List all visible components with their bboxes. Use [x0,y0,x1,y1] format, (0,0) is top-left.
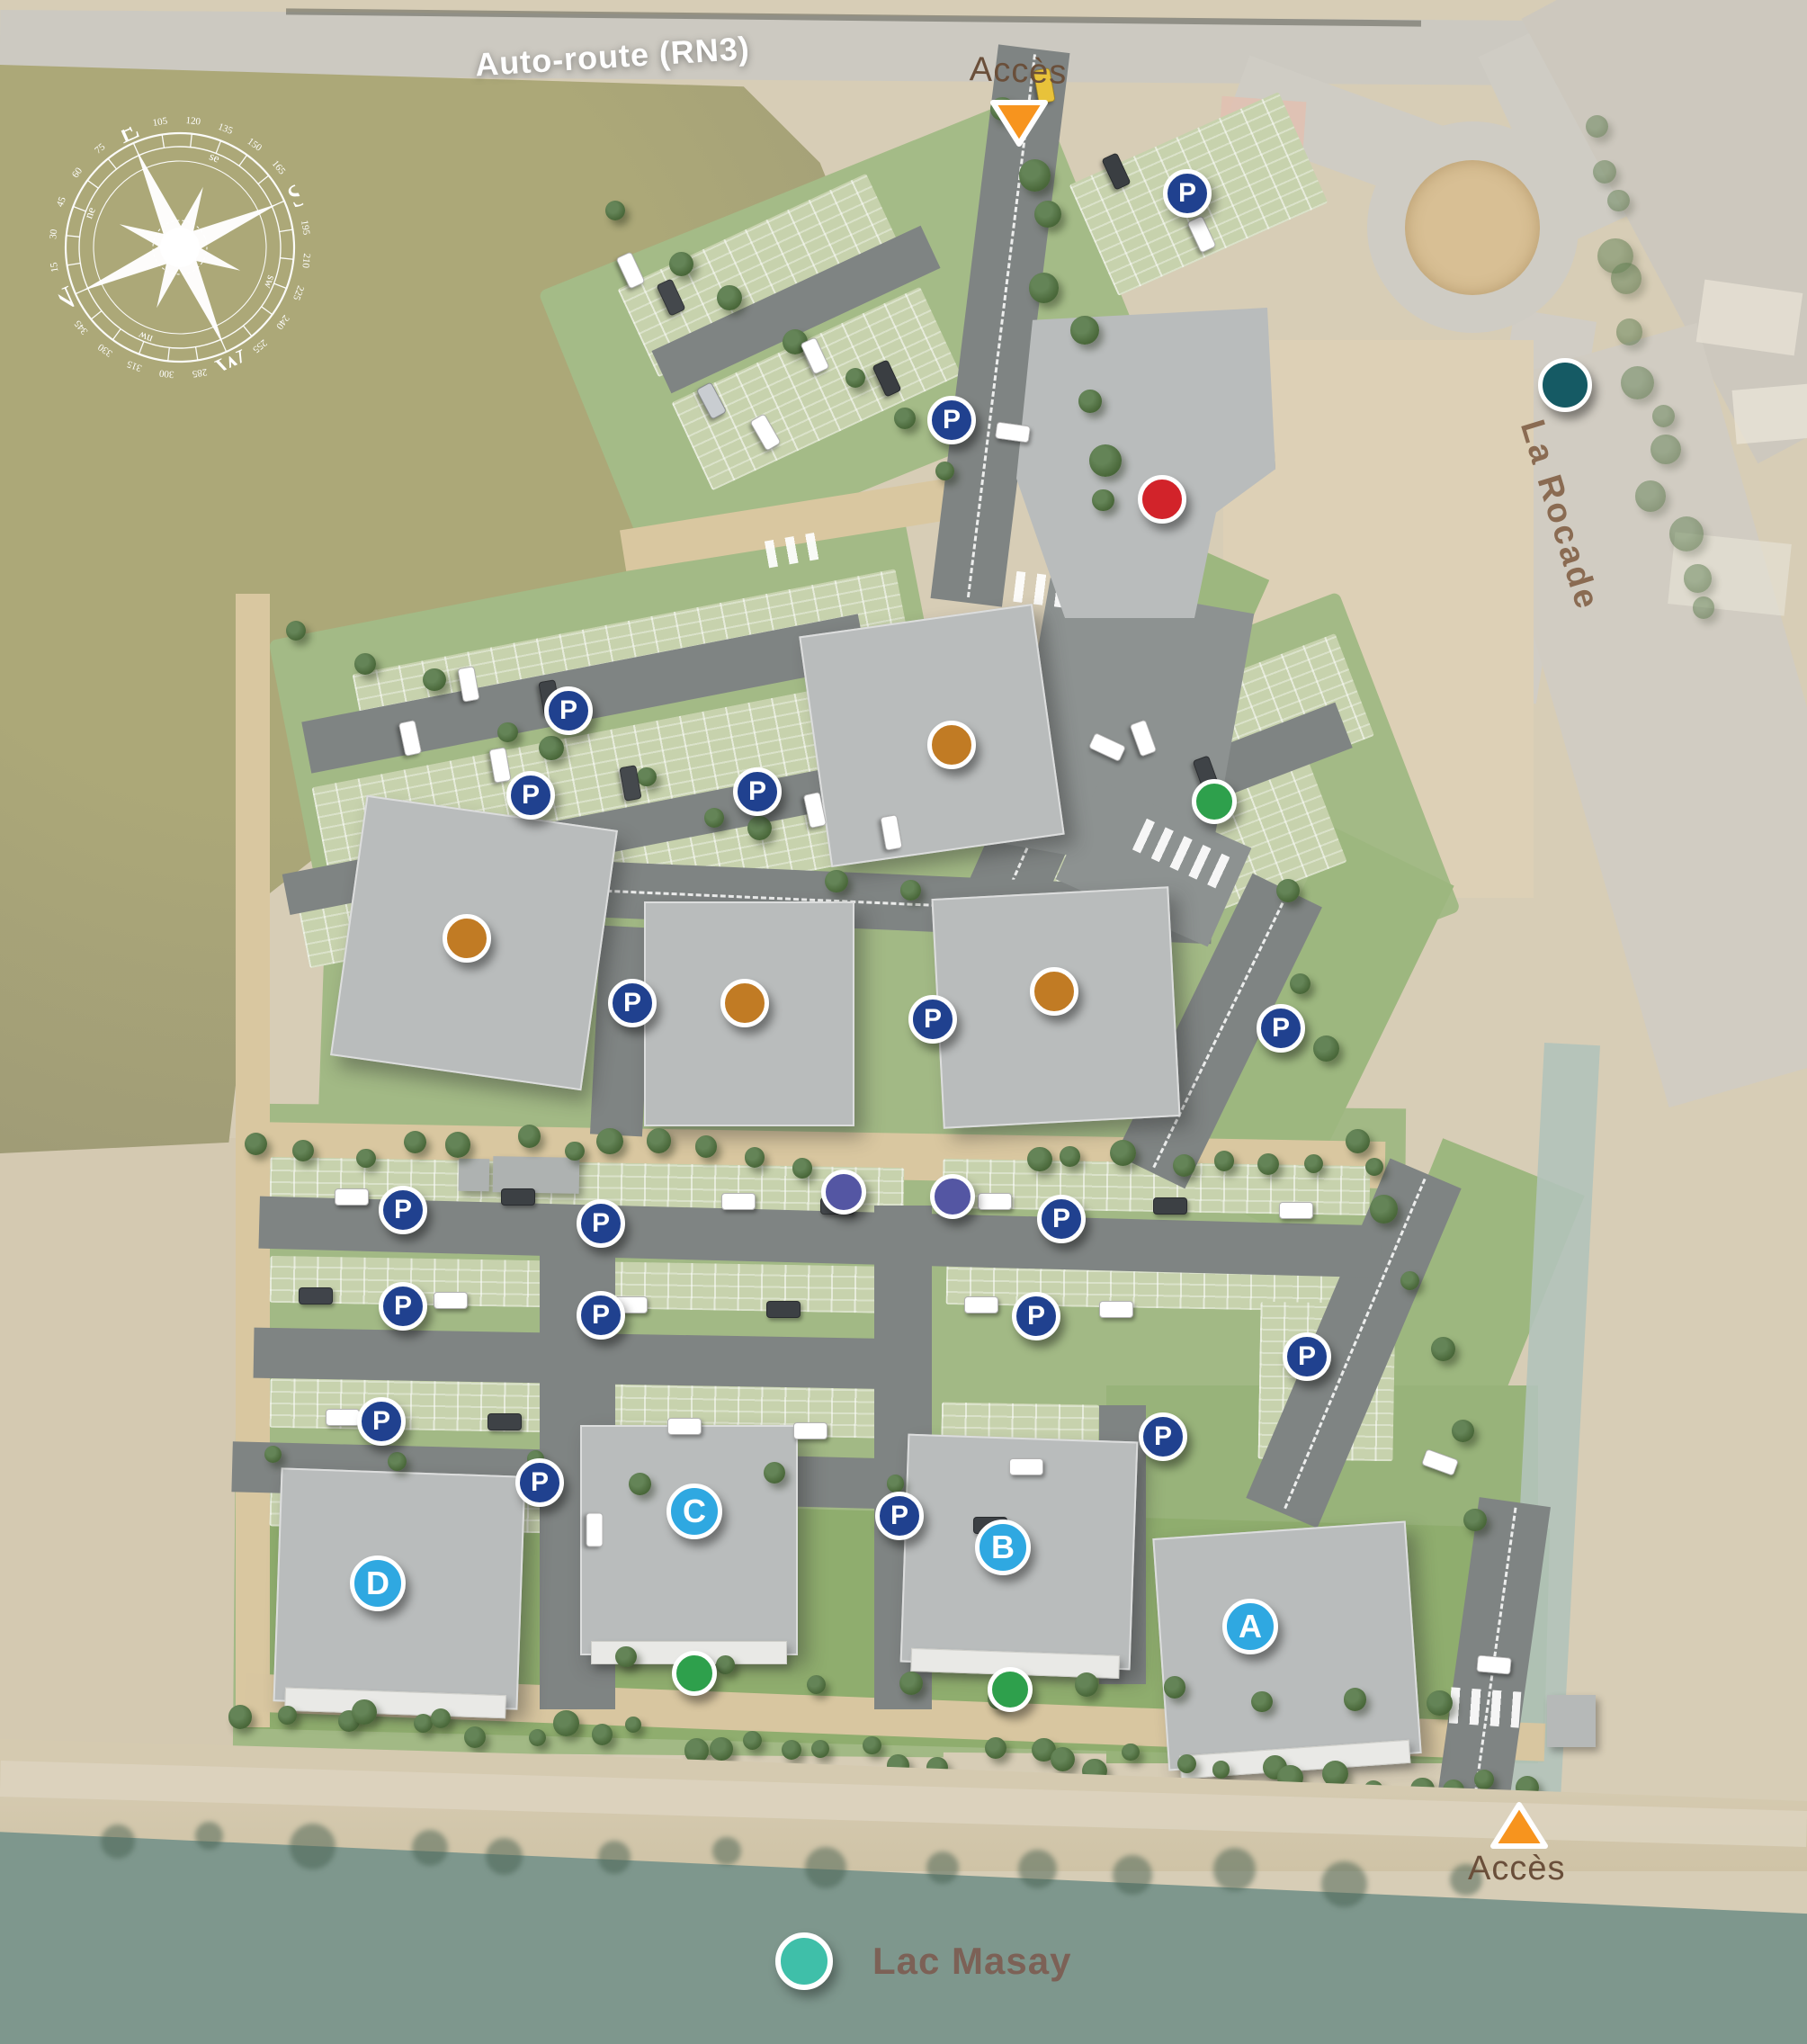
tree [1370,1195,1398,1223]
tree [1693,596,1715,619]
building-marker-b[interactable]: B [975,1520,1031,1575]
tree [1474,1770,1494,1789]
site-plan-map: PPPPPPPPPPPPPPPPPPPABCD Auto-route (RN3)… [0,0,1807,2044]
tree [596,1128,623,1155]
tree [637,767,656,786]
svg-text:30: 30 [48,229,59,240]
parking-marker[interactable]: P [608,979,657,1027]
svg-text:45: 45 [55,195,68,209]
tree [445,1132,471,1158]
tree [1029,273,1060,303]
parking-marker[interactable]: P [379,1186,427,1234]
parked-car [1099,1301,1133,1318]
tree [625,1717,641,1733]
shore-tree-shadow [1018,1850,1057,1888]
tree [1122,1744,1140,1762]
tree [1290,973,1311,994]
parking-marker[interactable]: P [577,1291,625,1340]
shore-tree-shadow [926,1851,959,1884]
parking-marker[interactable]: P [1139,1412,1187,1461]
red-unit-dot[interactable] [1138,475,1186,524]
parking-marker[interactable]: P [577,1199,625,1248]
svg-text:210: 210 [300,253,312,269]
tree [1652,405,1675,427]
parking-marker[interactable]: P [506,771,555,820]
parked-car [335,1188,369,1206]
tree [1431,1337,1455,1361]
parking-marker[interactable]: P [733,767,782,816]
tree [745,1147,765,1167]
crosswalk [1449,1687,1522,1727]
parked-car [299,1287,333,1304]
parking-marker[interactable]: P [1012,1292,1060,1340]
tree [278,1706,296,1724]
svg-text:315: 315 [125,358,143,373]
shore-tree-shadow [598,1841,631,1874]
svg-text:330: 330 [96,341,115,359]
building-marker-d[interactable]: D [350,1555,406,1611]
tree [669,252,693,276]
tree [1586,115,1608,138]
orange-unit-dot[interactable] [927,721,976,769]
tree [1177,1754,1196,1773]
tree [647,1128,671,1152]
tree [1400,1271,1419,1290]
tree [553,1710,578,1735]
svg-text:60: 60 [70,166,85,180]
tree [704,808,724,828]
parked-car [1279,1202,1313,1219]
parked-car [1009,1458,1043,1475]
parking-marker[interactable]: P [379,1282,427,1331]
parked-car [326,1409,360,1426]
tree [1684,564,1713,593]
tree [1164,1676,1186,1699]
tree [1027,1147,1052,1172]
shore-tree-shadow [1113,1855,1152,1895]
tree [1060,1146,1079,1166]
service-building [459,1159,490,1192]
orange-unit-dot[interactable] [720,979,769,1027]
shore-tree-shadow [290,1824,335,1869]
building-marker-c[interactable]: C [666,1484,722,1539]
svg-text:135: 135 [217,121,235,137]
building-c [580,1425,798,1655]
tree [1344,1688,1367,1711]
tree [1669,516,1704,551]
tree [1276,879,1300,902]
parked-car [586,1513,604,1547]
svg-text:150: 150 [246,136,264,154]
building-a [1152,1520,1421,1771]
tree [1251,1691,1272,1712]
purple-unit-dot[interactable] [930,1174,975,1219]
tree [1019,159,1051,192]
tree [1212,1761,1230,1778]
building-marker-a[interactable]: A [1222,1599,1278,1654]
lake-legend-dot [775,1932,833,1990]
tree [1611,263,1642,293]
tree [356,1149,376,1169]
tree [565,1142,585,1161]
tree [497,722,517,742]
shore-tree-shadow [1321,1861,1367,1907]
tree [518,1125,541,1148]
parked-car [667,1418,702,1435]
tree [629,1473,651,1495]
parking-marker[interactable]: P [875,1492,924,1540]
svg-text:240: 240 [273,313,291,332]
service-building [1547,1695,1596,1747]
sand-path [236,594,270,1727]
svg-text:15: 15 [49,261,61,273]
purple-unit-dot[interactable] [821,1170,866,1215]
tree [782,1740,801,1760]
tree [1650,435,1681,465]
parking-marker[interactable]: P [515,1458,564,1507]
orange-unit-dot[interactable] [443,914,491,963]
tree [1607,190,1630,212]
parking-marker[interactable]: P [544,686,593,735]
tree [1092,489,1114,511]
tree [1034,201,1061,228]
tree [807,1675,826,1694]
tree [747,816,772,840]
green-unit-dot[interactable] [1192,779,1237,824]
access-bottom-arrow-icon [1489,1801,1549,1851]
tree [1070,316,1099,345]
surround-building [1696,280,1803,356]
tree [792,1158,812,1178]
parking-marker[interactable]: P [927,396,976,444]
tree [825,870,847,892]
tree [716,1655,735,1674]
shore-tree-shadow [101,1824,135,1859]
tree [710,1737,732,1760]
tree [1051,1747,1075,1771]
shore-tree-shadow [1213,1848,1257,1891]
tree [264,1446,282,1463]
svg-text:300: 300 [158,367,174,380]
svg-text:105: 105 [152,115,169,129]
parked-car [964,1296,998,1313]
tree [592,1724,613,1744]
tree [1322,1761,1348,1787]
tree [1313,1035,1339,1062]
parking-marker[interactable]: P [1283,1332,1331,1381]
tree [717,285,742,310]
tree [1635,480,1666,511]
parked-car [488,1413,522,1430]
tree [1089,444,1122,477]
tree [615,1646,636,1667]
tree [863,1736,881,1754]
tree [539,736,564,761]
access-bottom-label: Accès [1468,1850,1565,1888]
parked-car [501,1188,535,1206]
tree [1463,1509,1487,1532]
tree [1078,390,1101,412]
surround-building [1732,383,1807,444]
parked-car [434,1292,468,1309]
access-top-arrow-icon [989,97,1049,148]
svg-text:195: 195 [299,220,312,237]
tree [900,880,921,901]
green-unit-dot[interactable] [672,1651,717,1696]
access-top-label: Accès [969,50,1068,93]
orange-unit-dot[interactable] [1030,967,1078,1016]
tree [985,1737,1007,1760]
lake-legend: Lac Masay [775,1932,1071,1990]
parked-car [721,1193,756,1210]
parking-marker[interactable]: P [1037,1195,1086,1243]
parking-marker[interactable]: P [1163,169,1212,218]
tree [529,1729,546,1746]
tree [1427,1690,1453,1717]
svg-text:345: 345 [72,318,90,336]
tree [404,1131,426,1153]
svg-text:120: 120 [185,115,201,128]
parking-marker[interactable]: P [908,995,957,1044]
roundabout-center [1405,160,1540,295]
parking-marker[interactable]: P [357,1397,406,1446]
svg-text:225: 225 [291,284,306,302]
tree [811,1740,829,1758]
green-unit-dot[interactable] [988,1667,1033,1712]
parked-car [766,1301,801,1318]
tree [388,1452,407,1471]
tree [352,1699,377,1725]
shore-tree-shadow [805,1847,846,1888]
shore-tree-shadow [712,1837,740,1865]
svg-text:75: 75 [93,141,107,157]
tree [1346,1129,1370,1153]
teal-unit-dot[interactable] [1538,358,1592,412]
tree [354,653,376,675]
tree [695,1135,718,1158]
tree [887,1475,904,1492]
shore-tree-shadow [486,1838,523,1875]
tree [1593,160,1616,184]
parked-car [793,1422,827,1439]
tree [1452,1420,1474,1442]
parking-marker[interactable]: P [1257,1004,1305,1053]
surround-left-band [0,1138,256,1768]
parked-car [1476,1654,1512,1674]
parked-car [1153,1197,1187,1215]
lake-legend-label: Lac Masay [872,1940,1071,1983]
svg-text:285: 285 [191,366,208,380]
tree [1075,1672,1098,1696]
tree [845,368,865,388]
parked-car [978,1193,1012,1210]
tree [894,408,916,429]
